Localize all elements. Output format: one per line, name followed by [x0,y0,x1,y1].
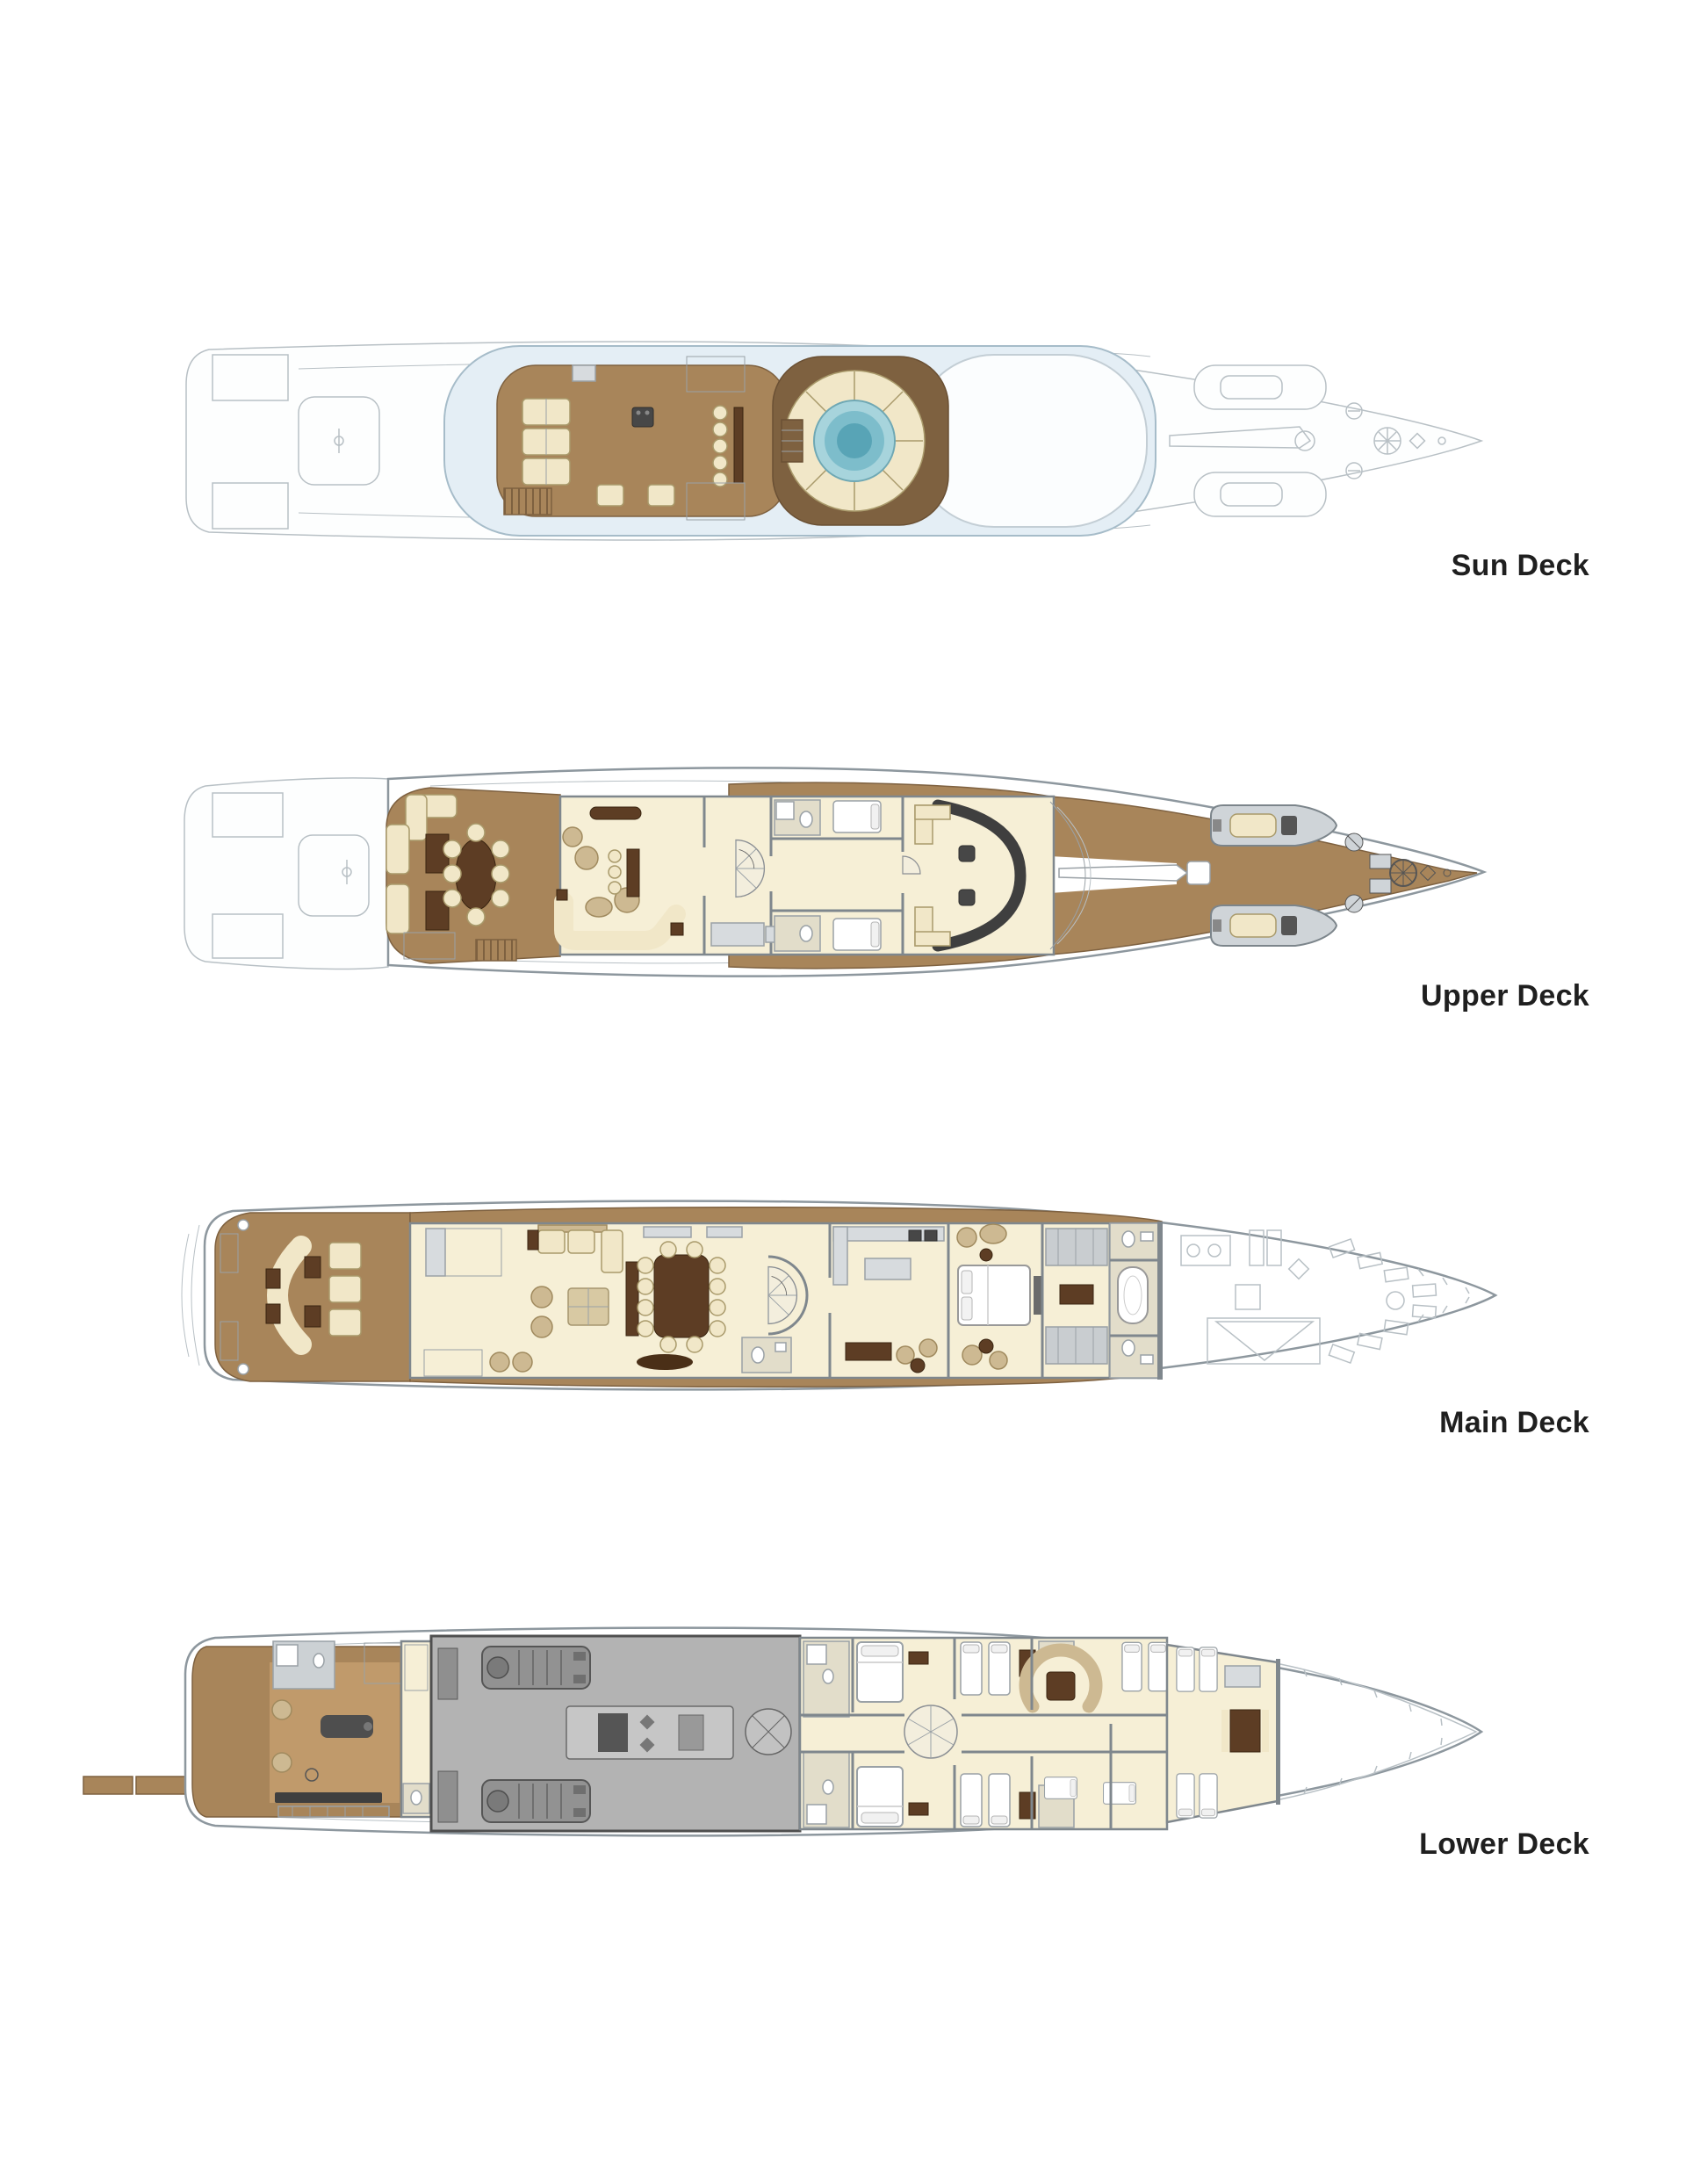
pantry [711,923,782,946]
engine [482,1780,590,1822]
transom-ghost [182,1225,199,1366]
guest-area [800,1638,1168,1829]
interior [557,796,1054,955]
tender-outline [1194,472,1326,516]
forward-bulkhead [1157,1222,1163,1380]
ghost-stern [184,778,388,969]
stair-lobby [401,1641,431,1817]
tender [1211,805,1337,846]
lower-deck-label: Lower Deck [1221,1825,1589,1863]
lower-deck-drawing [75,1611,1502,1857]
tender-outline [1194,365,1326,409]
round-lounge [1026,1650,1096,1721]
collision-bulkhead [1276,1659,1280,1805]
control-console [598,1713,628,1752]
yacht-deck-plans-page: Sun Deck [0,0,1686,2184]
tender [1211,905,1337,946]
guest-spiral-staircase [904,1705,957,1758]
crane-boom [1059,865,1187,881]
helm-chair [959,890,975,905]
crew-mess-table [1230,1710,1260,1752]
aft-deck [386,788,560,963]
upper-deck-drawing [167,751,1493,1001]
foredeck [1050,796,1477,955]
crew-quarters [1167,1645,1280,1822]
drinks-station [632,407,653,427]
beach-club [192,1641,401,1817]
windlass-outline [1374,428,1401,454]
aft-deck-stairs [476,940,516,961]
tv-console [275,1792,382,1803]
main-deck-label: Main Deck [1221,1403,1589,1442]
main-deck-drawing [162,1181,1502,1420]
interior [410,1222,1163,1380]
upper-deck-label: Upper Deck [1221,977,1589,1015]
engine-room [431,1636,800,1831]
sun-deck-drawing [167,316,1493,566]
owner-bathroom [1110,1223,1159,1378]
sun-deck-label: Sun Deck [1221,546,1589,585]
games-table [627,849,639,897]
engine [482,1647,590,1689]
helm-chair [959,846,975,861]
